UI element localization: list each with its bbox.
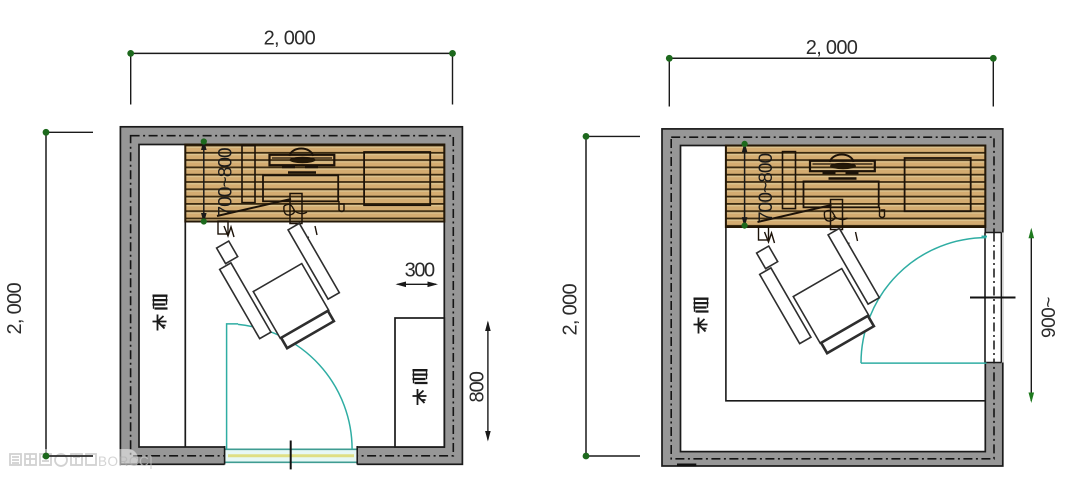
svg-text:800: 800 — [467, 371, 489, 402]
svg-text:2, 000: 2, 000 — [264, 28, 316, 50]
svg-text:BORCC|: BORCC| — [98, 454, 153, 469]
svg-text:2, 000: 2, 000 — [806, 37, 858, 59]
svg-text:300: 300 — [405, 260, 435, 282]
svg-text:700~800: 700~800 — [216, 148, 237, 217]
svg-text:700~800: 700~800 — [756, 153, 777, 222]
svg-text:900~: 900~ — [1039, 297, 1060, 338]
svg-text:2, 000: 2, 000 — [4, 283, 26, 335]
svg-text:2, 000: 2, 000 — [560, 284, 582, 336]
